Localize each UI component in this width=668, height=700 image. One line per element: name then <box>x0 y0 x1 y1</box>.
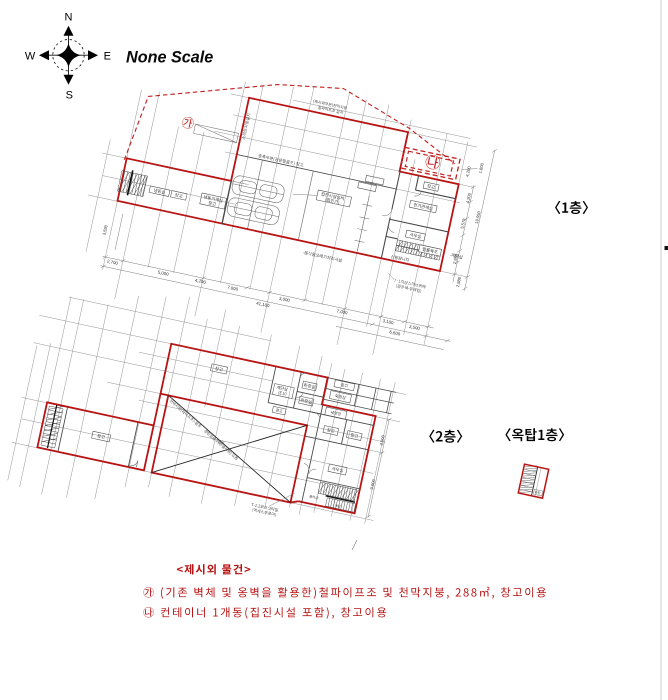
svg-text:E: E <box>104 50 111 62</box>
svg-text:S: S <box>66 90 73 102</box>
svg-text:None Scale: None Scale <box>126 49 213 67</box>
svg-text:W: W <box>25 50 36 62</box>
svg-text:N: N <box>65 12 73 24</box>
